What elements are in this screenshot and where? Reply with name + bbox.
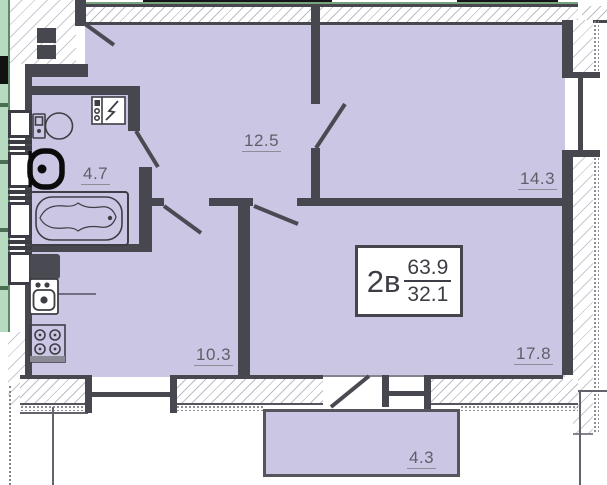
washbasin-icon (30, 151, 62, 187)
unit-area-living: 32.1 (407, 282, 448, 306)
unit-type-label: 2в (367, 266, 401, 297)
balcony-door-swing (331, 376, 369, 407)
toilet-icon (33, 113, 73, 139)
room-label-balcony: 4.3 (407, 448, 436, 469)
fridge-icon (30, 254, 60, 279)
bathtub-icon (30, 192, 128, 245)
unit-area-total: 63.9 (404, 256, 451, 282)
floor-plan-canvas: 12.5 14.3 4.7 10.3 17.8 4.3 2в 63.9 32.1 (0, 0, 607, 485)
room-label-bathroom: 4.7 (81, 164, 110, 185)
kitchen-door-swing (164, 206, 201, 233)
bedroom-door-swing (316, 104, 345, 148)
stove-icon (30, 325, 65, 362)
bathroom-door-swing (136, 131, 158, 167)
room-label-bedroom: 14.3 (518, 169, 557, 190)
room-label-living: 17.8 (514, 344, 553, 365)
symbols-layer (0, 0, 607, 485)
room-label-kitchen: 10.3 (194, 345, 233, 366)
kitchen-sink-icon (30, 279, 96, 314)
entrance-door-swing (85, 24, 114, 45)
washing-machine-icon (92, 97, 125, 124)
unit-info-box: 2в 63.9 32.1 (355, 245, 463, 317)
living-door-swing (254, 206, 298, 224)
room-label-hall: 12.5 (242, 131, 281, 152)
unit-area-fraction: 63.9 32.1 (404, 256, 451, 306)
